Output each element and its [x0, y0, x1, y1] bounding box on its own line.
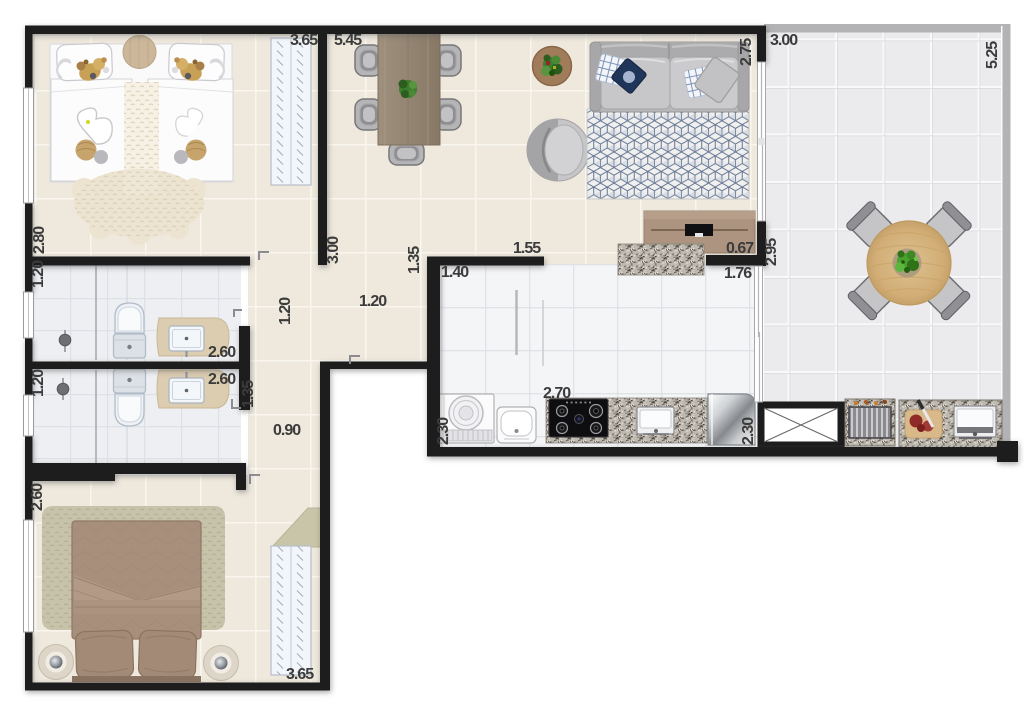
svg-text:2.80: 2.80 — [31, 226, 48, 254]
svg-text:3.00: 3.00 — [325, 236, 342, 264]
svg-text:1.76: 1.76 — [724, 265, 752, 282]
svg-text:5.45: 5.45 — [334, 32, 362, 49]
svg-text:0.67: 0.67 — [726, 240, 754, 257]
svg-text:1.35: 1.35 — [406, 246, 423, 274]
svg-text:2.30: 2.30 — [435, 417, 452, 445]
svg-text:5.25: 5.25 — [984, 41, 1001, 69]
svg-text:1.20: 1.20 — [30, 369, 47, 397]
svg-text:1.20: 1.20 — [359, 293, 387, 310]
svg-text:2.70: 2.70 — [543, 385, 571, 402]
svg-text:1.40: 1.40 — [441, 264, 469, 281]
svg-text:1.20: 1.20 — [277, 297, 294, 325]
svg-text:2.60: 2.60 — [29, 483, 46, 511]
svg-text:1.55: 1.55 — [513, 240, 541, 257]
svg-text:3.65: 3.65 — [290, 32, 318, 49]
svg-text:0.90: 0.90 — [273, 422, 301, 439]
svg-text:2.95: 2.95 — [763, 238, 780, 266]
svg-text:3.00: 3.00 — [770, 32, 798, 49]
svg-text:3.65: 3.65 — [286, 666, 314, 683]
svg-text:1.20: 1.20 — [30, 260, 47, 288]
svg-text:2.60: 2.60 — [208, 371, 236, 388]
svg-text:1.35: 1.35 — [240, 380, 257, 408]
svg-text:2.30: 2.30 — [740, 417, 757, 445]
svg-text:2.60: 2.60 — [208, 344, 236, 361]
svg-text:2.75: 2.75 — [738, 38, 755, 66]
